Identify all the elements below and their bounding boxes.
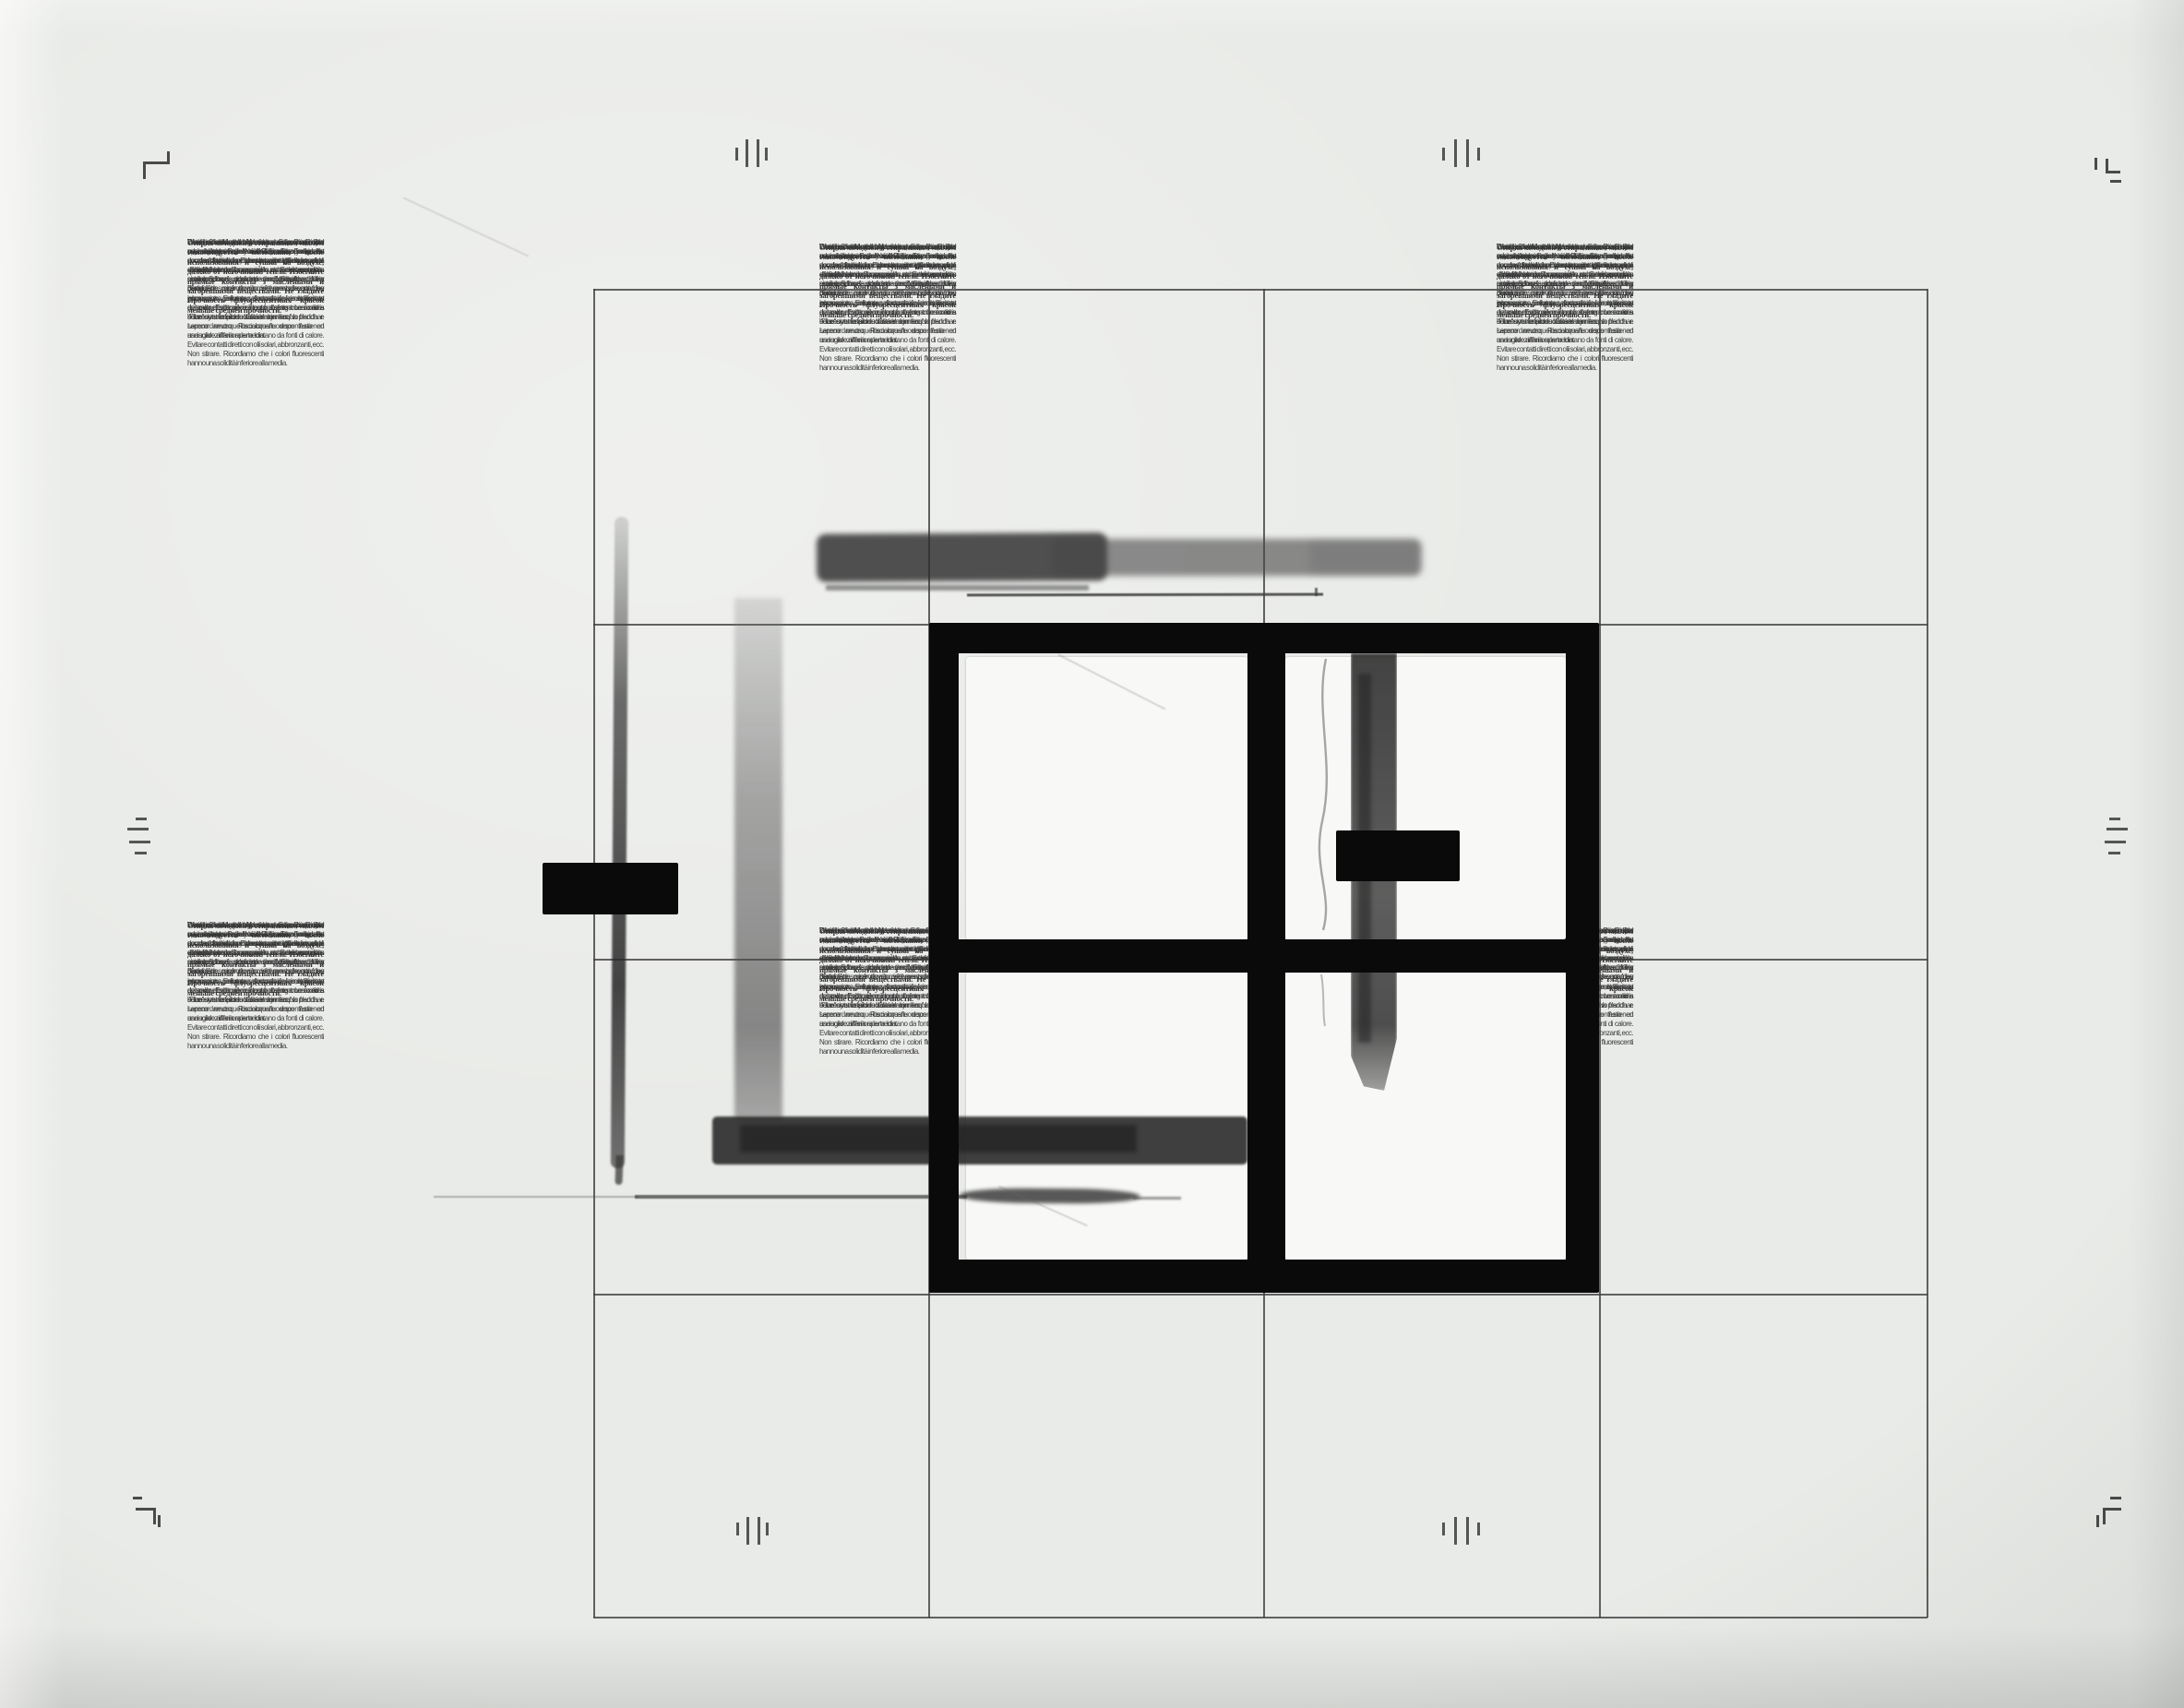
grid-line-vertical-5 [1927, 289, 1928, 1618]
white-pane-top-left [966, 657, 1247, 939]
grid-line-vertical-4 [1599, 289, 1601, 1618]
white-pane-bottom-left [966, 972, 1247, 1260]
grid-line-horizontal-4 [593, 1294, 1927, 1296]
care-paragraph-russian: Стирка холодной в стиральным мылом Реком… [187, 921, 324, 997]
grid-line-horizontal-5 [593, 1617, 1927, 1618]
black-rectangle-inner [1336, 830, 1460, 881]
white-pane-top-right [1285, 657, 1566, 939]
care-paragraph-russian: Стирка холодной в стиральным мылом Реком… [1497, 243, 1633, 319]
care-paragraph-russian: Стирка холодной в стиральным мылом Реком… [187, 238, 324, 315]
white-pane-bottom-right [1285, 972, 1566, 1260]
grid-line-horizontal-1 [593, 289, 1927, 291]
black-frame-middle-vertical-bar [1247, 623, 1285, 1293]
black-rectangle-left [543, 863, 678, 914]
care-paragraph-russian: Стирка холодной в стиральным мылом Реком… [819, 243, 956, 319]
artwork-photo: Gentile Cliente, nel ringraziarLa per l'… [0, 0, 2184, 1708]
grid-line-vertical-1 [593, 289, 595, 1618]
